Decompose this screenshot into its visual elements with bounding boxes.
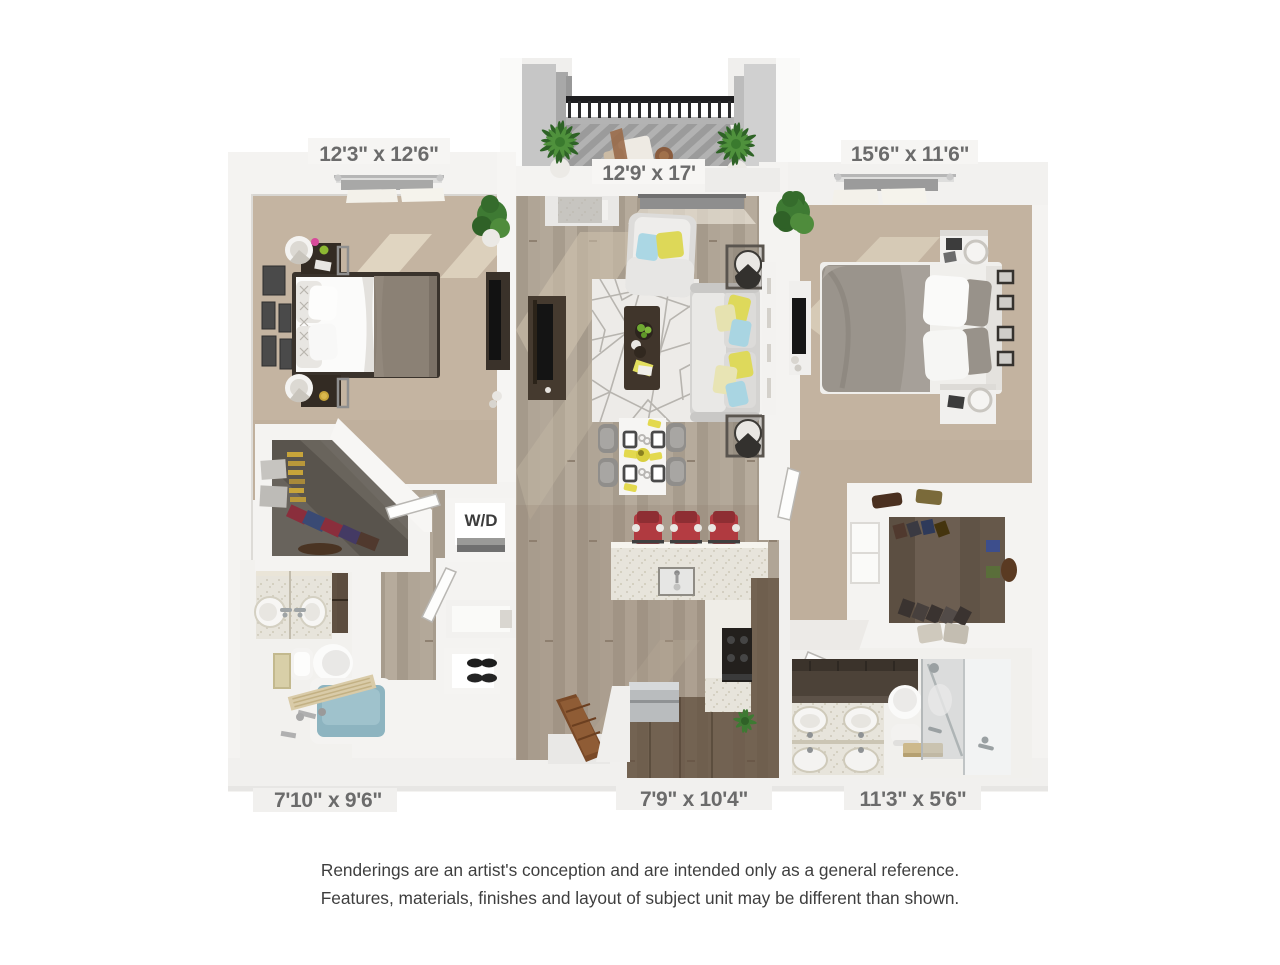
svg-text:7'10" x 9'6": 7'10" x 9'6"	[274, 789, 382, 812]
svg-text:12'9' x 17': 12'9' x 17'	[602, 162, 695, 185]
svg-text:Features, materials, finishes: Features, materials, finishes and layout…	[321, 888, 959, 908]
svg-text:12'3" x 12'6": 12'3" x 12'6"	[319, 143, 438, 166]
svg-text:Renderings are an artist's con: Renderings are an artist's conception an…	[321, 860, 959, 880]
svg-text:7'9" x 10'4": 7'9" x 10'4"	[640, 788, 748, 811]
svg-text:W/D: W/D	[464, 511, 497, 530]
svg-text:11'3" x 5'6": 11'3" x 5'6"	[860, 788, 967, 811]
svg-text:15'6" x 11'6": 15'6" x 11'6"	[851, 143, 969, 166]
